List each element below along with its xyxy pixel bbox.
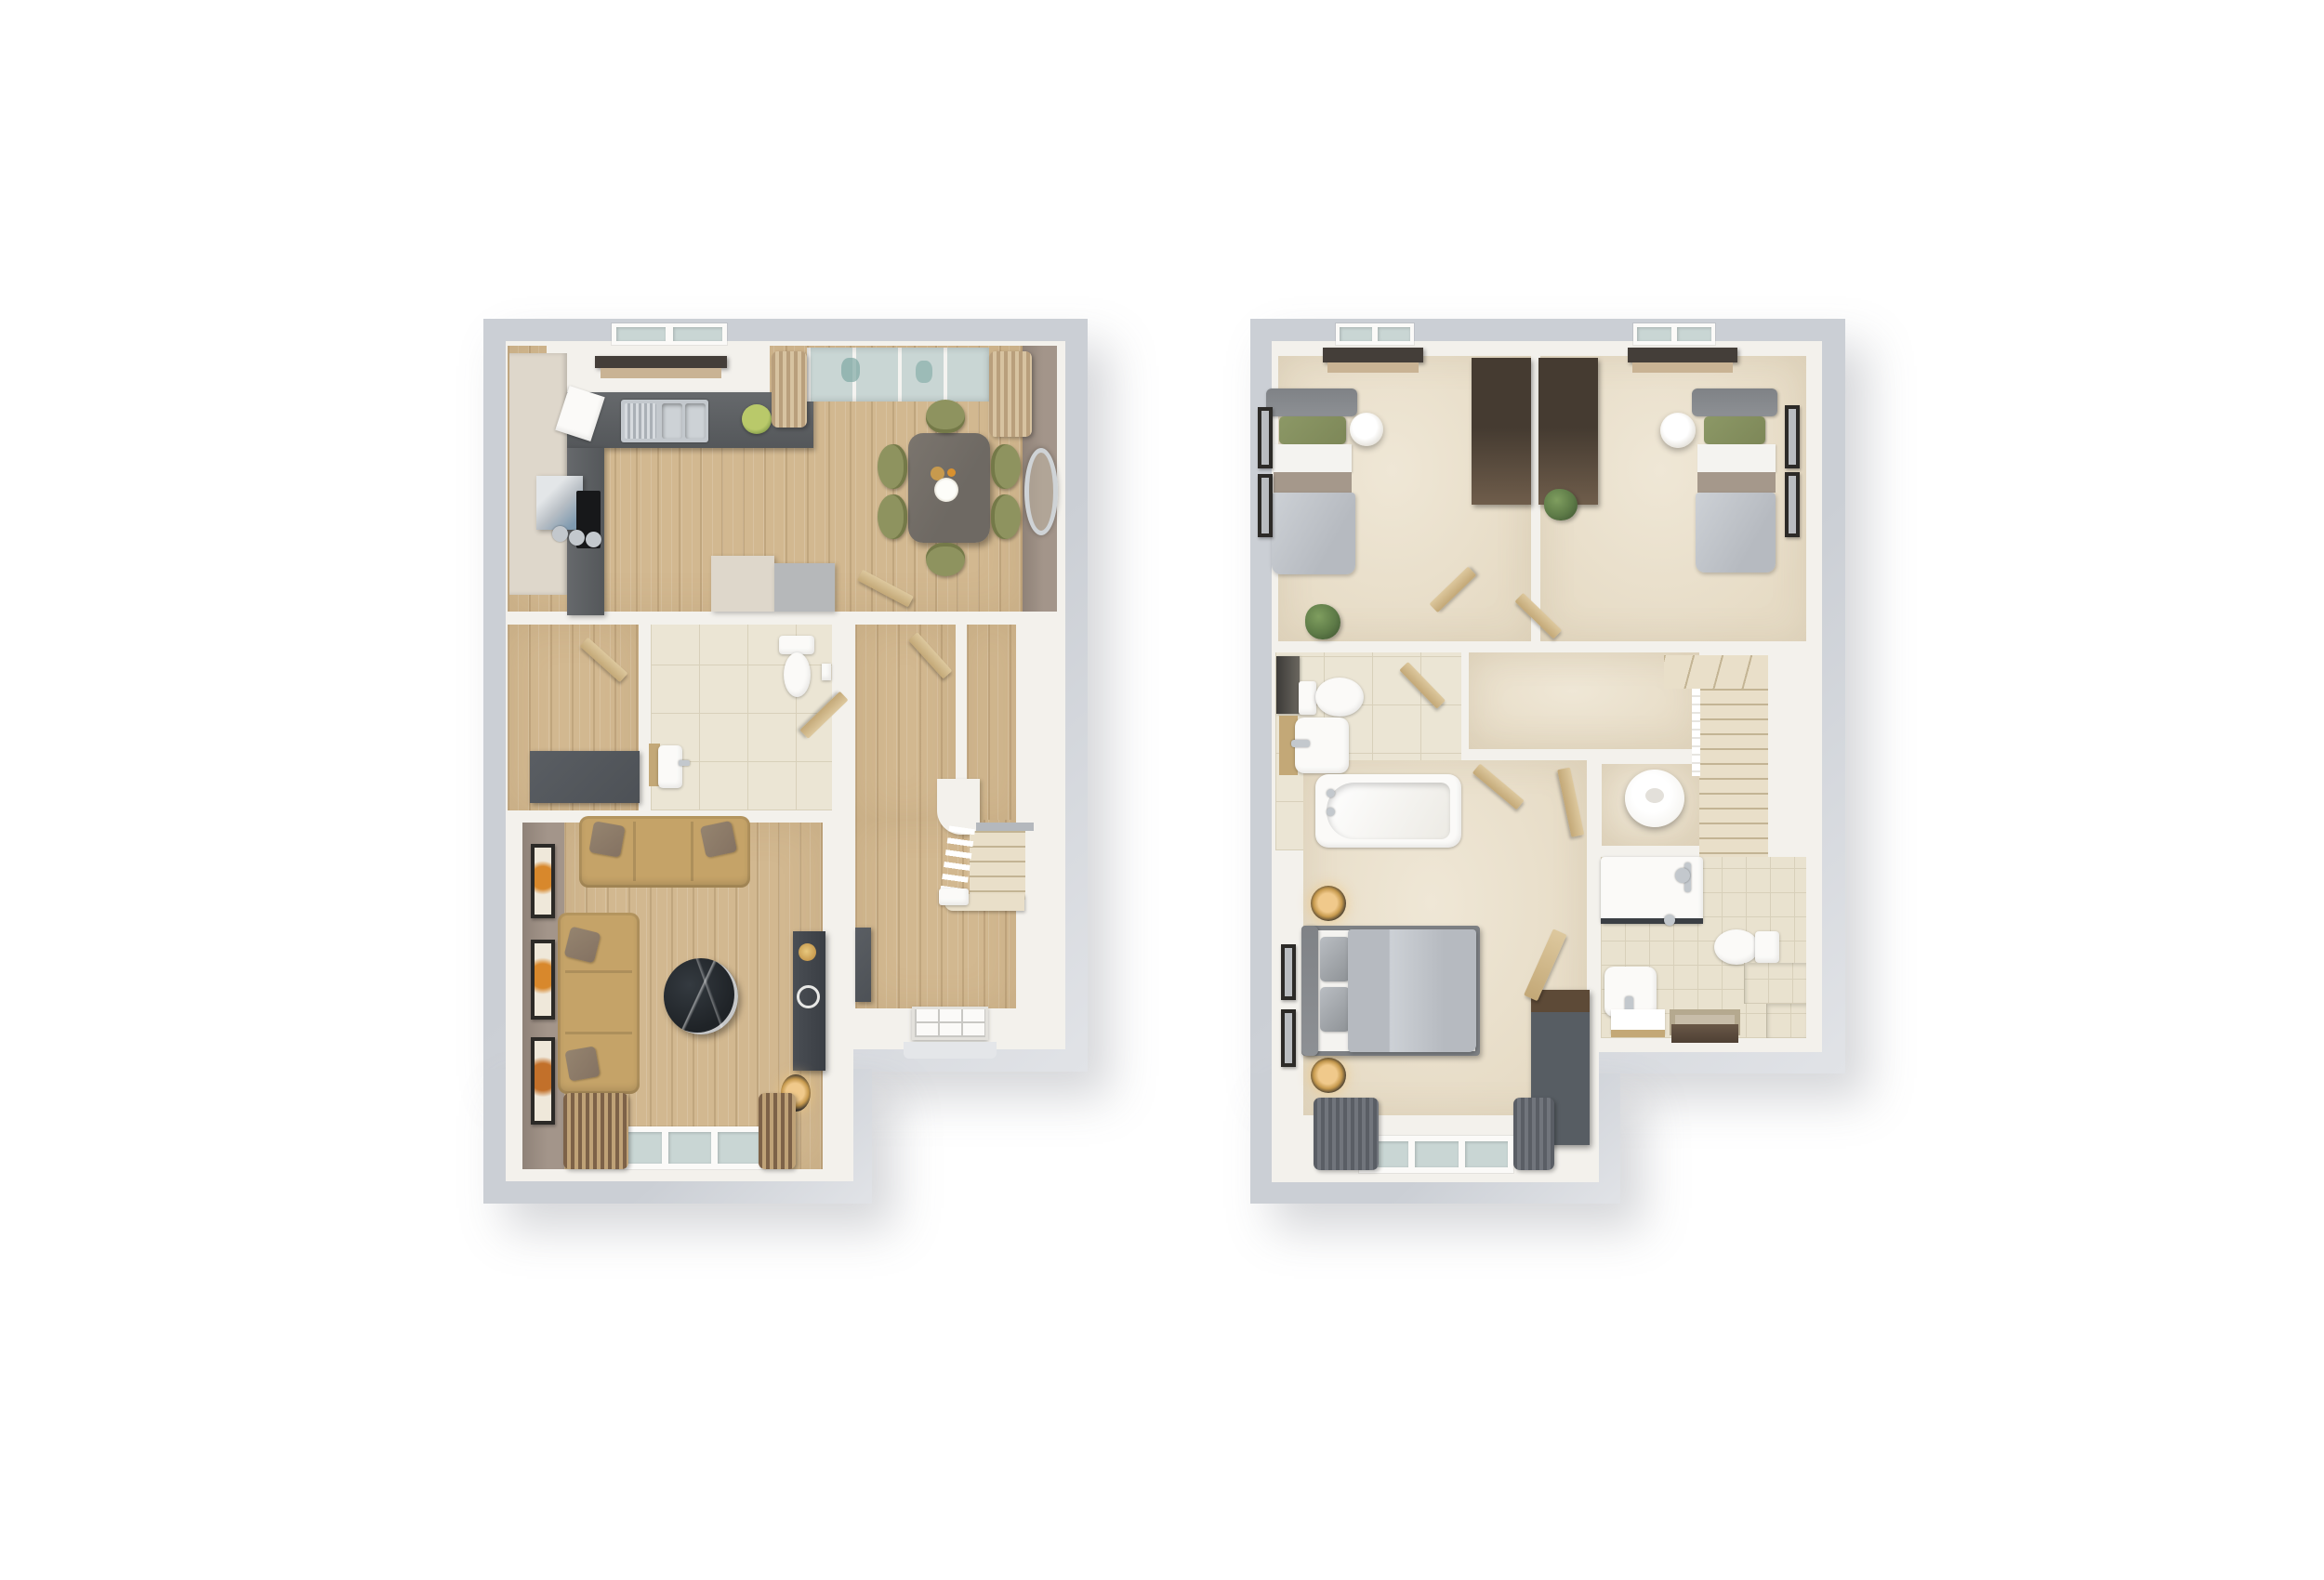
plant (1305, 604, 1340, 639)
bedside-lamp (1311, 1058, 1346, 1093)
pendant-shade (1660, 413, 1696, 448)
bed-duvet (1696, 493, 1776, 573)
cylinder-cap (1645, 788, 1664, 803)
toilet-bowl (1315, 678, 1364, 717)
bed-duvet (1272, 493, 1355, 574)
master-window (1359, 1136, 1513, 1173)
mat-trim (1611, 1030, 1665, 1037)
toilet-cistern (1299, 681, 1316, 715)
balustrade (1692, 689, 1700, 776)
wall-picture (1258, 474, 1273, 537)
bed-headboard (1301, 926, 1318, 1056)
plant (1544, 489, 1578, 520)
bath-tap (1327, 808, 1335, 816)
wall-picture (1258, 407, 1273, 468)
green-pillow (1704, 416, 1765, 444)
floorplan-canvas (0, 0, 2324, 1580)
bed-headboard (1692, 388, 1777, 416)
wall-picture (1785, 472, 1800, 537)
wall-picture (1281, 944, 1296, 1000)
toilet-cistern (1755, 931, 1779, 963)
tiled-step (1766, 1004, 1806, 1038)
shower-head (1675, 868, 1690, 883)
wardrobe (1538, 358, 1598, 505)
towel-radiator (1276, 656, 1300, 714)
tiled-step (1744, 963, 1806, 1004)
wall-picture (1281, 1009, 1296, 1067)
window-pelmet (1628, 348, 1737, 362)
bed-sheet (1697, 444, 1776, 472)
stair-winders (1664, 655, 1768, 689)
first-floor-plan (0, 0, 2324, 1580)
curtain-pile (1513, 1098, 1554, 1170)
window-pelmet (1323, 348, 1423, 362)
window-blind (1632, 362, 1733, 373)
bed-pillow (1320, 937, 1350, 981)
basin-tap (1291, 740, 1310, 747)
bath-tap (1327, 789, 1335, 797)
green-pillow (1279, 416, 1346, 444)
shower-glass (1601, 918, 1703, 924)
bed-duvet (1348, 929, 1476, 1052)
wall-picture (1785, 405, 1800, 468)
bedside-lamp (1311, 886, 1346, 921)
bed-headboard (1266, 388, 1357, 416)
bed-sheet (1274, 444, 1352, 472)
bed-pillow (1320, 987, 1350, 1032)
curtain-pile (1314, 1098, 1379, 1170)
bath (1315, 774, 1461, 848)
toilet-bowl (1714, 929, 1759, 965)
bed-runner (1697, 472, 1776, 493)
bedroom-1-window (1336, 323, 1414, 345)
bed-runner (1274, 472, 1352, 493)
bedroom-2-window (1633, 323, 1715, 345)
shower-handle (1664, 915, 1675, 926)
pendant-shade (1350, 413, 1383, 446)
wardrobe (1472, 358, 1531, 505)
brown-towel (1671, 1024, 1738, 1043)
window-blind (1327, 362, 1419, 373)
